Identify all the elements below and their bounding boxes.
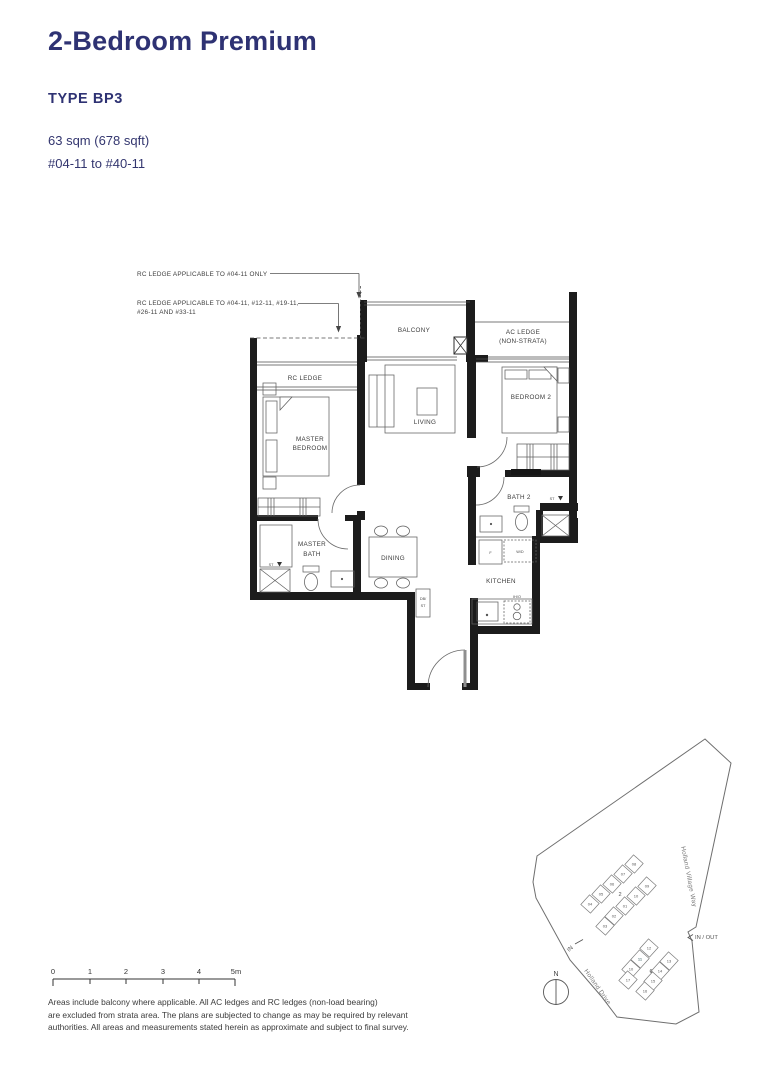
room-label-ac-ledge-2: (NON-STRATA) bbox=[499, 338, 547, 345]
svg-text:4: 4 bbox=[197, 967, 201, 976]
compass: N bbox=[544, 971, 569, 1005]
scale-bar: 0 1 2 3 4 5m bbox=[44, 960, 254, 994]
label-washer-dryer: W/D bbox=[516, 550, 524, 554]
unit-type-label: TYPE BP3 bbox=[48, 91, 317, 107]
shower-marker-icon bbox=[277, 562, 282, 567]
label-fridge: F bbox=[489, 551, 492, 555]
svg-text:0: 0 bbox=[51, 967, 55, 976]
annotation-note2-line2: #26-11 AND #33-11 bbox=[137, 309, 196, 316]
bath2-fixtures bbox=[480, 496, 569, 536]
svg-text:05: 05 bbox=[599, 892, 604, 897]
svg-text:06: 06 bbox=[610, 882, 615, 887]
disclaimer-line: are excluded from strata area. The plans… bbox=[48, 1009, 468, 1022]
in-arrow-icon bbox=[575, 940, 583, 945]
svg-text:5m: 5m bbox=[231, 967, 241, 976]
scale-bar-line bbox=[53, 979, 235, 986]
svg-text:17: 17 bbox=[626, 978, 631, 983]
room-labels: BALCONY AC LEDGE (NON-STRATA) RC LEDGE M… bbox=[288, 327, 552, 585]
kitchen-counter bbox=[472, 599, 532, 624]
label-shower-st-1: ST bbox=[550, 497, 556, 501]
svg-text:09: 09 bbox=[645, 884, 650, 889]
room-label-master-bath: MASTER bbox=[298, 541, 326, 548]
svg-text:10: 10 bbox=[634, 894, 639, 899]
svg-text:13: 13 bbox=[667, 959, 672, 964]
stack-range-label: #04-11 to #40-11 bbox=[48, 156, 317, 171]
block-6-label: 6 bbox=[649, 969, 652, 975]
header: 2-Bedroom Premium TYPE BP3 63 sqm (678 s… bbox=[48, 26, 317, 171]
room-label-dining: DINING bbox=[381, 555, 405, 562]
road-label-holland-drive: Holland Drive bbox=[582, 968, 612, 1006]
plan-walls bbox=[250, 292, 578, 690]
shower-marker-icon bbox=[558, 496, 563, 501]
living-furniture bbox=[369, 365, 455, 433]
label-in: IN bbox=[566, 945, 574, 953]
label-db: DB/ bbox=[420, 597, 427, 601]
master-wardrobe bbox=[258, 498, 320, 516]
svg-text:01: 01 bbox=[623, 904, 628, 909]
svg-text:07: 07 bbox=[621, 872, 626, 877]
label-hob: IH/O bbox=[513, 595, 521, 599]
svg-text:12: 12 bbox=[647, 946, 652, 951]
master-bath-fixtures bbox=[260, 525, 354, 592]
svg-text:14: 14 bbox=[658, 969, 663, 974]
site-plan: Holland Village Way Holland Drive IN / O… bbox=[528, 730, 768, 1032]
room-label-balcony: BALCONY bbox=[398, 327, 431, 334]
room-label-living: LIVING bbox=[414, 419, 436, 426]
svg-text:1: 1 bbox=[88, 967, 92, 976]
floor-plan: RC LEDGE APPLICABLE TO #04-11 ONLY RC LE… bbox=[130, 258, 610, 718]
svg-text:10: 10 bbox=[629, 967, 634, 972]
site-block-top: 08 07 06 05 04 09 10 01 02 03 2 bbox=[581, 855, 656, 935]
disclaimer-line: authorities. All areas and measurements … bbox=[48, 1021, 468, 1034]
room-label-master-bedroom-2: BEDROOM bbox=[293, 445, 328, 452]
svg-text:3: 3 bbox=[161, 967, 165, 976]
label-in-out: IN / OUT bbox=[695, 935, 718, 941]
svg-text:04: 04 bbox=[588, 902, 593, 907]
svg-text:2: 2 bbox=[124, 967, 128, 976]
room-label-ac-ledge: AC LEDGE bbox=[506, 329, 540, 336]
road-label-holland-village-way: Holland Village Way bbox=[679, 846, 698, 908]
db-st-cabinet bbox=[416, 589, 430, 617]
room-label-master-bath-2: BATH bbox=[303, 551, 321, 558]
rc-ledge-annotations: RC LEDGE APPLICABLE TO #04-11 ONLY RC LE… bbox=[137, 271, 362, 333]
room-label-bedroom2: BEDROOM 2 bbox=[511, 394, 552, 401]
label-shower-st-2: ST bbox=[269, 563, 275, 567]
svg-text:03: 03 bbox=[603, 924, 608, 929]
svg-text:16: 16 bbox=[643, 989, 648, 994]
utility-appliances bbox=[479, 540, 536, 564]
annotation-note1: RC LEDGE APPLICABLE TO #04-11 ONLY bbox=[137, 271, 268, 278]
site-block-bottom: 12 11 10 13 14 15 16 17 6 bbox=[619, 939, 678, 1000]
annotation-arrowheads bbox=[336, 292, 362, 333]
svg-text:15: 15 bbox=[651, 979, 656, 984]
annotation-note2-line1: RC LEDGE APPLICABLE TO #04-11, #12-11, #… bbox=[137, 300, 299, 307]
brochure-page: 2-Bedroom Premium TYPE BP3 63 sqm (678 s… bbox=[0, 0, 768, 1080]
room-label-master-bedroom: MASTER bbox=[296, 436, 324, 443]
entrance-door-leaf bbox=[464, 650, 467, 687]
bedroom2-wardrobe bbox=[511, 444, 569, 475]
room-label-rc-ledge: RC LEDGE bbox=[288, 375, 323, 382]
area-label: 63 sqm (678 sqft) bbox=[48, 133, 317, 148]
room-label-kitchen: KITCHEN bbox=[486, 578, 516, 585]
label-db-st: ST bbox=[421, 604, 427, 608]
page-title: 2-Bedroom Premium bbox=[48, 26, 317, 57]
svg-text:08: 08 bbox=[632, 862, 637, 867]
disclaimer: Areas include balcony where applicable. … bbox=[48, 996, 468, 1034]
block-2-label: 2 bbox=[618, 892, 621, 898]
ac-unit-icon bbox=[454, 337, 467, 354]
disclaimer-line: Areas include balcony where applicable. … bbox=[48, 996, 468, 1009]
svg-text:02: 02 bbox=[612, 914, 617, 919]
compass-north-label: N bbox=[553, 971, 558, 978]
room-label-bath2: BATH 2 bbox=[507, 494, 531, 501]
